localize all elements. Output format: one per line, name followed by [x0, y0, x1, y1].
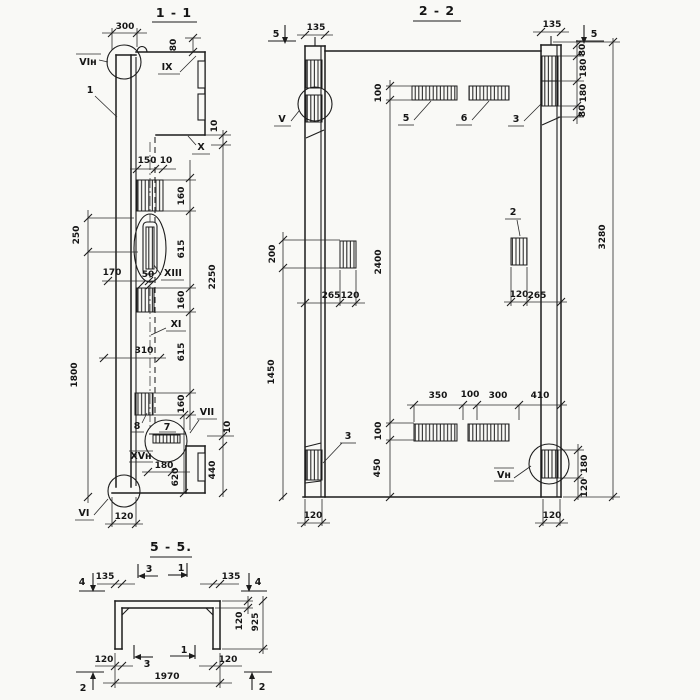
dim-1800: 1800 [70, 362, 80, 387]
embedded-plate [542, 81, 558, 106]
dim-135-left: 135 [307, 23, 326, 33]
dim-265-right: 265 [528, 291, 547, 301]
embedded-plate [542, 450, 558, 478]
label-X: X [197, 142, 205, 153]
dim-120-right-v: 120 [580, 479, 590, 498]
section-5-5: 5 - 5. 4 135 3 1 135 4 1 [76, 539, 272, 694]
label-IX: IX [162, 62, 174, 73]
embedded-plate [137, 180, 163, 211]
cut-mark-5-right: 5 [591, 29, 598, 40]
dim-10-top: 10 [210, 120, 220, 133]
dim-120-right: 120 [510, 290, 529, 300]
dim-120-br: 120 [543, 511, 562, 521]
dim-135-left-55: 135 [96, 572, 115, 582]
section-5-5-title: 5 - 5. [150, 539, 192, 554]
structural-drawing: 1 - 1 [0, 0, 700, 700]
dim-410: 410 [531, 391, 550, 401]
dim-250: 250 [72, 226, 82, 245]
dim-160c: 160 [177, 395, 187, 414]
embedded-plate-2 [511, 238, 527, 265]
dim-135-right-55: 135 [222, 572, 241, 582]
lifting-loop [137, 47, 147, 52]
label-VII: VII [200, 407, 214, 418]
embedded-angle [153, 435, 180, 443]
embedded-plate-5 [412, 86, 457, 100]
label-8: 8 [134, 421, 141, 432]
label-5: 5 [403, 113, 410, 124]
dim-180: 180 [155, 461, 174, 471]
dim-440: 440 [208, 461, 218, 480]
cut-mark-5-left: 5 [273, 29, 280, 40]
dim-180b: 180 [579, 84, 589, 103]
dim-80a: 80 [578, 44, 588, 57]
section-1-1-title: 1 - 1 [156, 5, 192, 20]
label-XI: XI [171, 319, 182, 330]
detail-circle-VI [108, 475, 140, 507]
label-V: V [278, 114, 286, 125]
dim-80b: 80 [578, 105, 588, 118]
dim-300: 300 [116, 22, 135, 32]
section-2-2-title: 2 - 2 [419, 3, 455, 18]
embedded-plate [306, 60, 322, 88]
label-XIII: XIII [164, 268, 182, 279]
dim-100-bottom: 100 [374, 422, 384, 441]
cut-mark-2-right: 2 [259, 682, 266, 693]
label-1: 1 [87, 85, 94, 96]
embedded-plate [306, 450, 322, 480]
dim-170: 170 [103, 268, 122, 278]
dim-160a: 160 [177, 187, 187, 206]
embedded-plate [340, 241, 356, 268]
label-Vn: Vн [497, 470, 511, 481]
dim-3280: 3280 [598, 224, 608, 249]
dim-100-top: 100 [374, 84, 384, 103]
edge-plate [198, 453, 205, 481]
embedded-plate [135, 393, 153, 415]
dim-120-bl-55: 120 [95, 655, 114, 665]
label-2: 2 [510, 207, 517, 218]
dim-450: 450 [373, 459, 383, 478]
cut-mark-4-left: 4 [79, 577, 86, 588]
dim-310: 310 [135, 346, 154, 356]
dim-615b: 615 [177, 343, 187, 362]
embedded-plate [306, 95, 322, 122]
embedded-plate [542, 56, 558, 81]
drawing-sheet: 1 - 1 [0, 0, 700, 700]
dim-50: 50 [142, 270, 155, 280]
dim-265-left: 265 [322, 291, 341, 301]
section-2-2: 2 - 2 V 3 5 5 135 [267, 3, 620, 527]
dim-2250: 2250 [208, 264, 218, 289]
embedded-plate [137, 288, 154, 312]
label-3-top: 3 [513, 114, 520, 125]
dim-10: 10 [160, 156, 173, 166]
embedded-plate [468, 424, 509, 441]
dim-120-flange: 120 [235, 612, 245, 631]
dim-120-bl: 120 [304, 511, 323, 521]
cut-mark-4-right: 4 [255, 577, 262, 588]
dim-180-right: 180 [580, 455, 590, 474]
cut-mark-3-top: 3 [146, 564, 153, 575]
embedded-plate [414, 424, 457, 441]
dim-925: 925 [251, 613, 261, 632]
dim-150: 150 [138, 156, 157, 166]
edge-plate [198, 61, 205, 88]
dim-135-right: 135 [543, 20, 562, 30]
cut-mark-3-bottom: 3 [144, 659, 151, 670]
label-6: 6 [461, 113, 468, 124]
dim-180a: 180 [579, 59, 589, 78]
dim-160b: 160 [177, 291, 187, 310]
dim-10-vii: 10 [223, 421, 233, 434]
dim-80: 80 [169, 39, 179, 52]
dim-120-br-55: 120 [219, 655, 238, 665]
cut-mark-1-bottom: 1 [181, 645, 188, 656]
dim-120: 120 [115, 512, 134, 522]
label-7: 7 [164, 422, 171, 433]
dim-615a: 615 [177, 240, 187, 259]
dim-350: 350 [429, 391, 448, 401]
label-3-bottom: 3 [345, 431, 352, 442]
cut-mark-2-left: 2 [80, 683, 87, 694]
dim-300: 300 [489, 391, 508, 401]
edge-plate [198, 94, 205, 120]
embedded-plate-6 [469, 86, 509, 100]
label-XVn: XVн [130, 451, 151, 462]
dim-2400: 2400 [374, 249, 384, 274]
dim-100-mid: 100 [461, 390, 480, 400]
dim-200: 200 [268, 245, 278, 264]
section-1-1: 1 - 1 [70, 5, 234, 528]
label-VIn: VIн [79, 57, 96, 68]
label-VI: VI [79, 508, 90, 519]
dim-1970: 1970 [154, 672, 179, 682]
dim-1450: 1450 [267, 359, 277, 384]
